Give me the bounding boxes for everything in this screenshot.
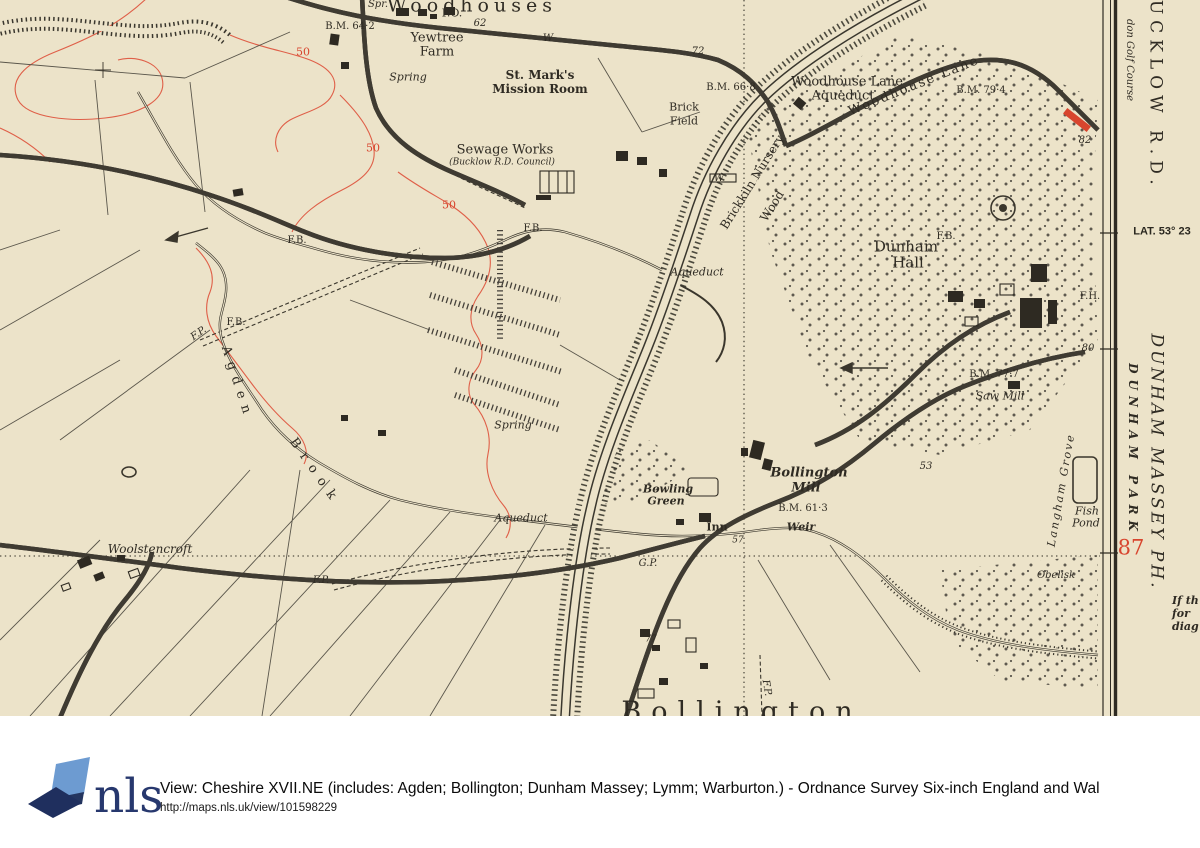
view-caption: View: Cheshire XVII.NE (includes: Agden;… [160,780,1100,798]
map-label: B.M. 79·4 [956,86,1005,96]
map-label: F.P. [313,576,329,586]
contour-lines [0,0,510,538]
map-label: Spring [494,420,531,431]
map-label: Saw Mill [976,391,1025,402]
map-label: B.M. 77·7 [969,370,1018,380]
map-label: Pond [1072,518,1100,529]
map-label: Yewtree [410,32,463,45]
map-label: don Golf Course [1124,19,1134,101]
map-label: 57 [732,537,743,546]
map-label: for [1172,608,1190,619]
map-label: BUCKLOW R.D. [1147,0,1164,191]
map-label: F.P. [760,679,773,697]
map-label: Green [647,496,684,507]
nls-logo: nls [22,752,162,840]
attribution-footer: nls View: Cheshire XVII.NE (includes: Ag… [0,716,1200,848]
map-label: Spr. [368,0,388,10]
map-label: 50 [366,143,380,154]
map-label: Brick [669,102,699,113]
map-label: Aqueduct [670,267,723,278]
map-label: If th [1172,595,1199,606]
map-label: B.M. 64·2 [325,22,374,32]
map-label: Hall [892,256,924,271]
map-label: St. Mark's [506,69,575,81]
map-label: 50 [442,200,456,211]
map-label: Aqueduct [494,513,547,524]
map-label: F.H. [1080,292,1100,302]
map-label: Sewage Works [457,144,554,157]
grid-cross [95,62,111,78]
map-label: Bollington [770,467,847,480]
map-label: Woodhouse Lane [791,76,903,89]
map-label: LAT. 53° 23 [1133,227,1190,238]
map-label: 72 [692,47,705,57]
map-label: Inn [706,522,727,533]
map-label: B.M. 61·3 [778,504,827,514]
map-image [0,0,1200,716]
map-label: Mission Room [492,83,588,95]
map-view-page: WoodhousesSpr.P.O.B.M. 64·262YewtreeFarm… [0,0,1200,848]
map-label: F.B. [936,232,955,242]
map-label: Farm [420,46,454,59]
map-label: Spring [389,72,426,83]
map-label: G.P. [639,559,658,569]
map-label: Field [670,116,698,127]
map-label: Mill [791,482,820,495]
map-label: F.B. [226,318,245,328]
sheet-border [1100,0,1118,716]
map-label: 53 [920,462,933,472]
map-label: Bollington [621,699,862,717]
map-label: 80 [1082,344,1095,354]
map-label: DUNHAM PARK [1127,363,1139,537]
logo-text: nls [94,769,162,824]
map-label: Woodhouses [387,0,557,16]
map-label: Woolstencroft [108,543,193,555]
map-label: DUNHAM MASSEY PH. [1148,333,1165,590]
map-label: Bowling [643,484,693,495]
map-label: B.M. 66·8 [706,83,755,93]
map-label: W [543,34,553,44]
map-label: 82 [1079,136,1092,146]
map-label: 50 [296,47,310,58]
map-label: Weir [787,522,815,533]
map-label: P.O. [442,8,463,19]
view-url[interactable]: http://maps.nls.uk/view/101598229 [160,802,1100,814]
map-label: (Bucklow R.D. Council) [449,159,555,168]
map-label: Obelisk [1037,571,1075,581]
map-label: Dunham [874,240,938,255]
map-label: Fish [1075,506,1099,517]
map-label: diag [1172,621,1199,632]
map-label: W [714,174,724,184]
map-label: F.B. [523,224,542,234]
map-label: 62 [474,19,487,29]
map-label: F.B. [287,236,306,246]
map-area[interactable]: WoodhousesSpr.P.O.B.M. 64·262YewtreeFarm… [0,0,1200,716]
map-label: 77 [645,636,656,645]
map-label: 87 [1118,538,1145,559]
